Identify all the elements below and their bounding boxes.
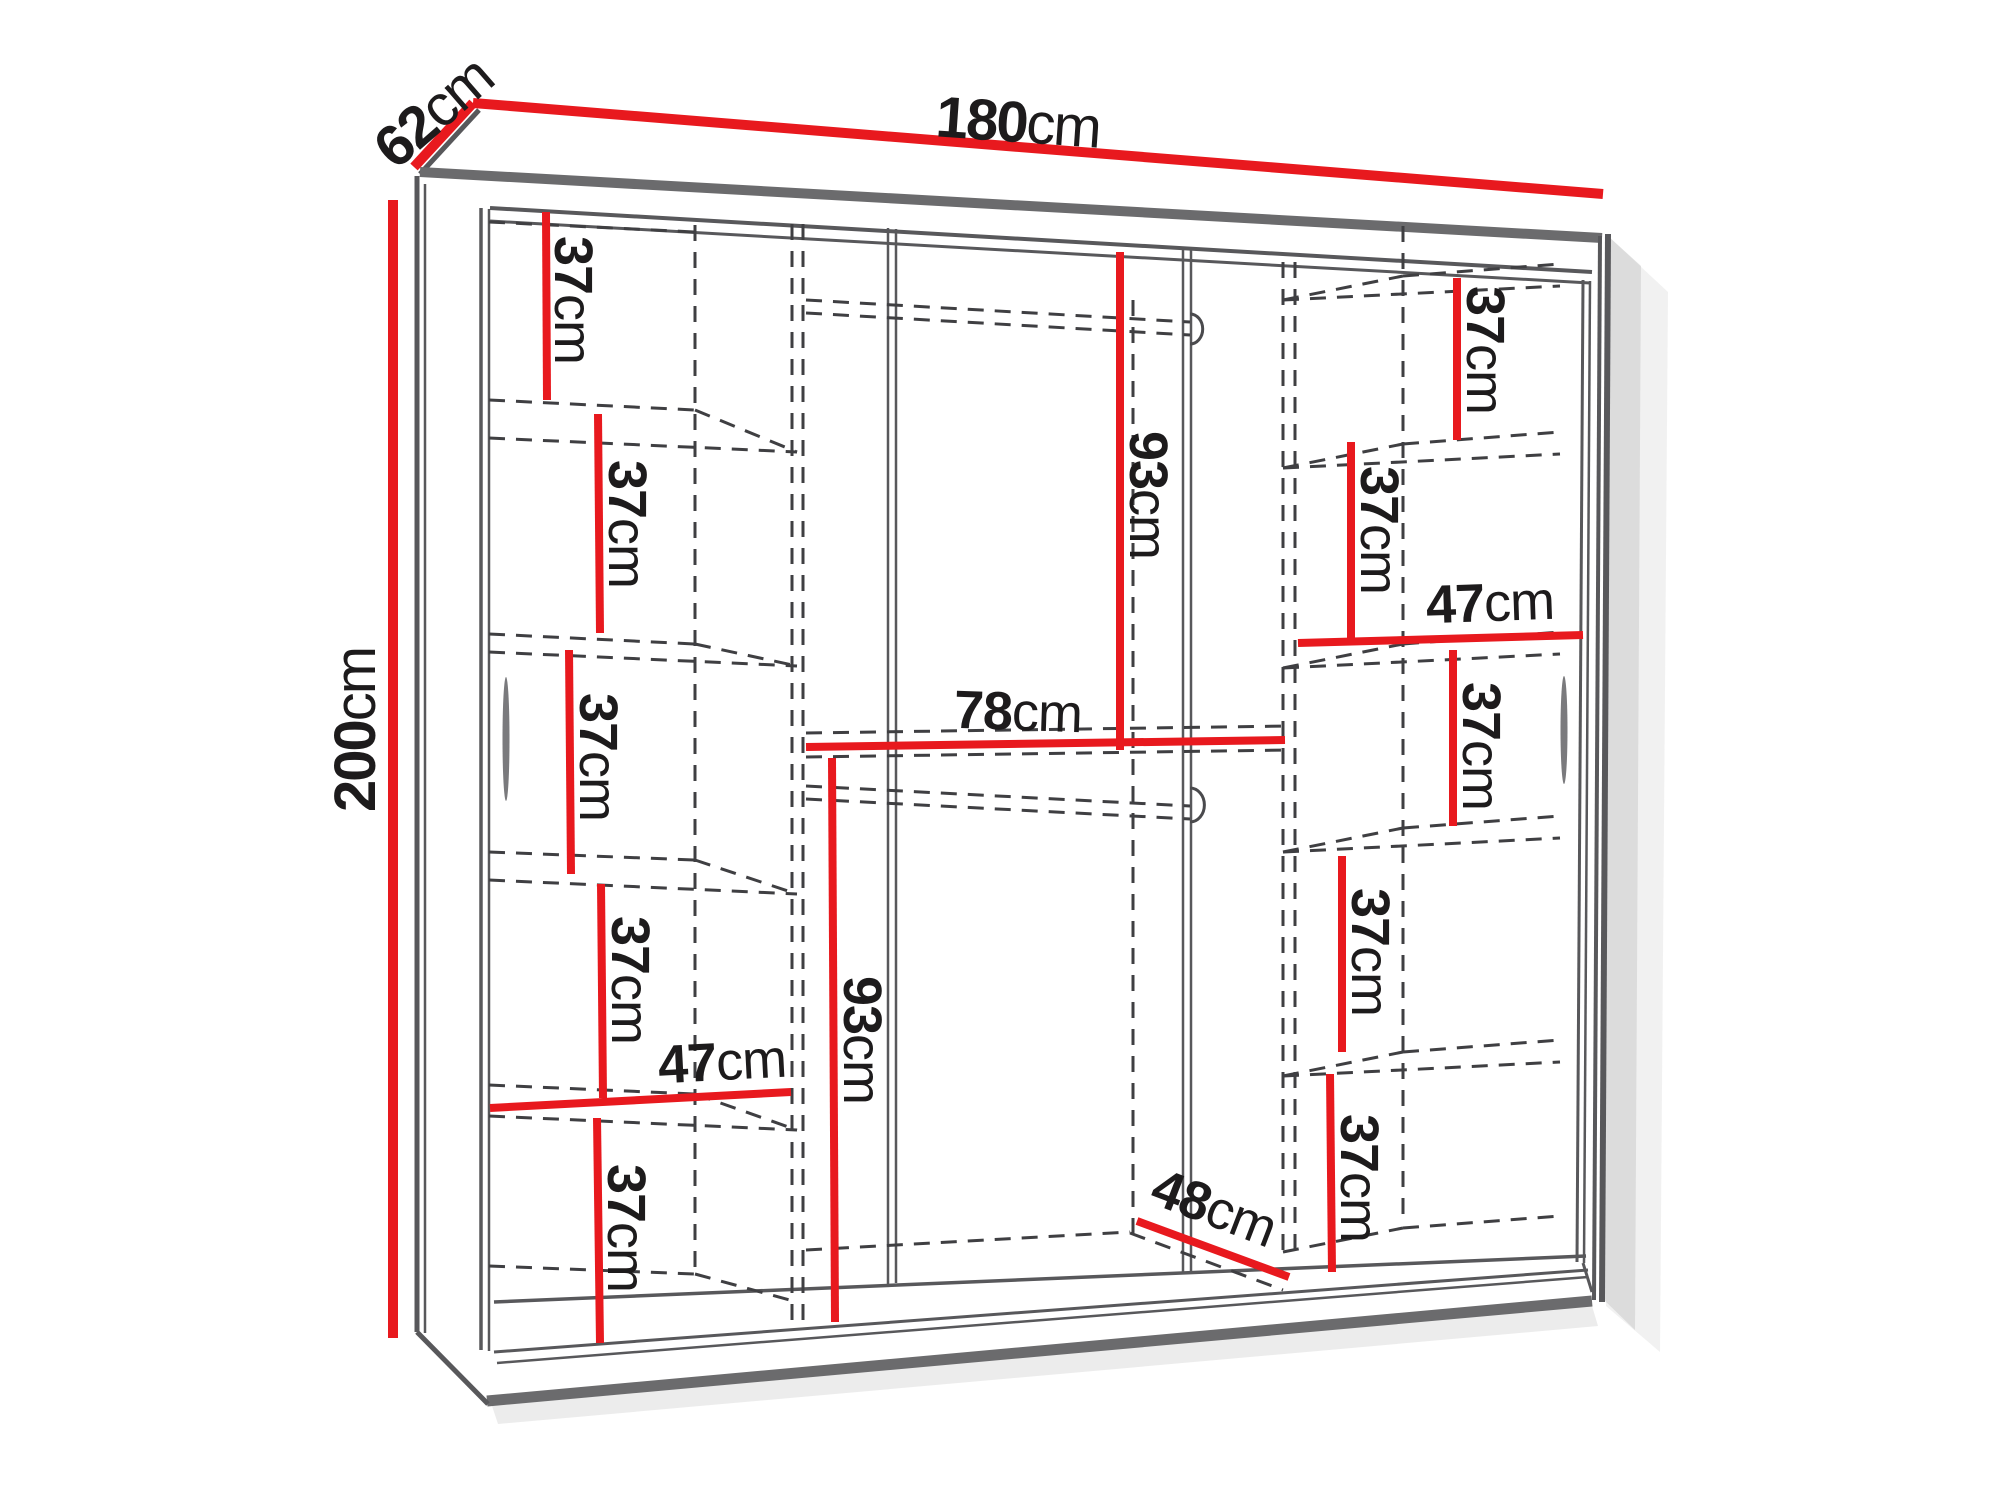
interior-ceiling-edge-1 (490, 208, 1592, 272)
shelf-edge (489, 880, 797, 894)
shelf-edge (1403, 432, 1560, 444)
shelf-edge (489, 652, 797, 666)
dimension-label-center-lower-height: 93cm (832, 976, 892, 1104)
interior-structure (489, 222, 1560, 1327)
shelf-edge (1403, 1040, 1560, 1052)
dimension-label-center-upper-height: 93cm (1118, 431, 1178, 559)
dimension-label-left-column-width: 47cm (656, 1029, 787, 1096)
dimension-label-bottom-depth: 48cm (1143, 1157, 1284, 1259)
dimension-line-left-column-width-47 (490, 1092, 791, 1108)
right-side-inner-edge (1594, 236, 1600, 1300)
dimension-label-left-shelf-5: 37cm (596, 1164, 656, 1292)
diagram-page: 180cm 62cm 200cm 37cm 37cm 37cm 37cm 47c… (0, 0, 2000, 1500)
bottom-left-corner-edge (417, 1332, 488, 1404)
dimension-label-height: 200cm (323, 648, 388, 812)
front-right-edge-2 (1584, 281, 1590, 1263)
shelf-edge (1403, 1216, 1560, 1228)
dimension-label-center-width: 78cm (953, 680, 1083, 744)
dimension-label-right-shelf-4: 37cm (1340, 888, 1400, 1016)
dimension-label-width: 180cm (934, 84, 1102, 160)
shelf-edge (489, 852, 695, 860)
dimension-label-right-shelf-5: 37cm (1329, 1114, 1389, 1242)
shelf-edge (1403, 816, 1560, 828)
shelf-edge (695, 410, 797, 452)
left-door-handle (503, 677, 510, 801)
dimension-label-left-shelf-3: 37cm (568, 693, 628, 821)
shelf-edge (695, 1274, 797, 1302)
right-door-handle (1561, 676, 1568, 784)
mid-shelf-edge-bottom (806, 750, 1288, 757)
front-right-edge-1 (1577, 280, 1583, 1262)
center-floor-back-edge (806, 1232, 1130, 1250)
dimension-label-left-shelf-1: 37cm (543, 236, 603, 364)
shelf-edge (489, 1116, 797, 1130)
wardrobe-dimension-diagram: 180cm 62cm 200cm 37cm 37cm 37cm 37cm 47c… (0, 0, 2000, 1500)
shelf-edge (489, 634, 695, 644)
dimension-label-right-shelf-3: 37cm (1451, 682, 1511, 810)
dimension-label-left-shelf-2: 37cm (597, 460, 657, 588)
shadow-bottom (492, 1306, 1598, 1424)
shelf-edge (489, 438, 797, 452)
cast-shadow (492, 236, 1668, 1424)
dimension-label-right-shelf-1: 37cm (1455, 286, 1515, 414)
shelf-edge (489, 1266, 695, 1274)
shelf-edge (489, 400, 695, 410)
dimension-label-right-shelf-2: 37cm (1349, 466, 1409, 594)
interior-floor-edge (494, 1256, 1586, 1302)
dimension-line-right-column-width-47 (1298, 635, 1583, 643)
dimension-label-right-column-width: 47cm (1425, 571, 1555, 635)
dimension-label-left-shelf-4: 37cm (600, 916, 660, 1044)
